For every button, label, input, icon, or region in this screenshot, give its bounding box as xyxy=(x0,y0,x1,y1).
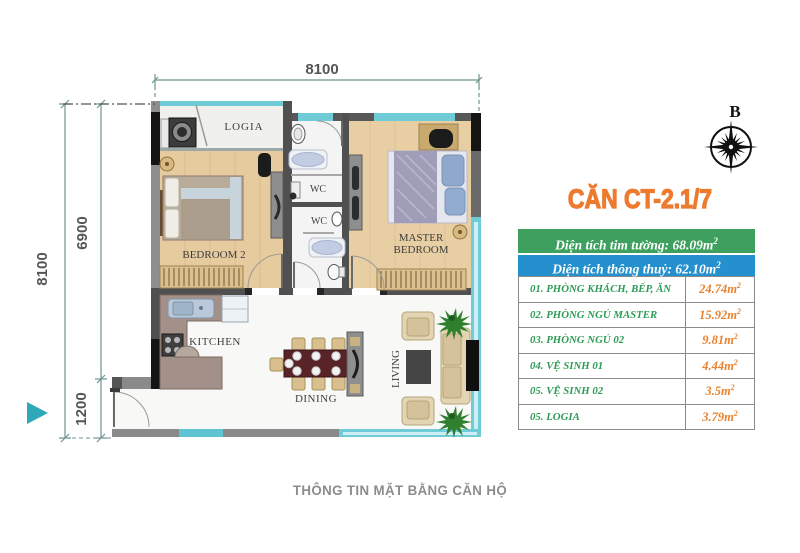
svg-text:8100: 8100 xyxy=(34,252,51,285)
svg-text:KITCHEN: KITCHEN xyxy=(189,336,241,348)
svg-text:DINING: DINING xyxy=(295,393,337,405)
svg-text:LIVING: LIVING xyxy=(390,350,402,388)
svg-text:1200: 1200 xyxy=(73,392,90,425)
svg-text:WC: WC xyxy=(311,216,327,227)
svg-text:MASTER: MASTER xyxy=(399,232,444,244)
svg-text:BEDROOM: BEDROOM xyxy=(393,244,448,256)
svg-text:8100: 8100 xyxy=(305,61,338,78)
svg-text:LOGIA: LOGIA xyxy=(224,121,263,133)
svg-text:WC: WC xyxy=(310,184,326,195)
svg-text:6900: 6900 xyxy=(74,216,91,249)
svg-text:BEDROOM 2: BEDROOM 2 xyxy=(182,249,245,261)
svg-text:B: B xyxy=(729,102,740,121)
